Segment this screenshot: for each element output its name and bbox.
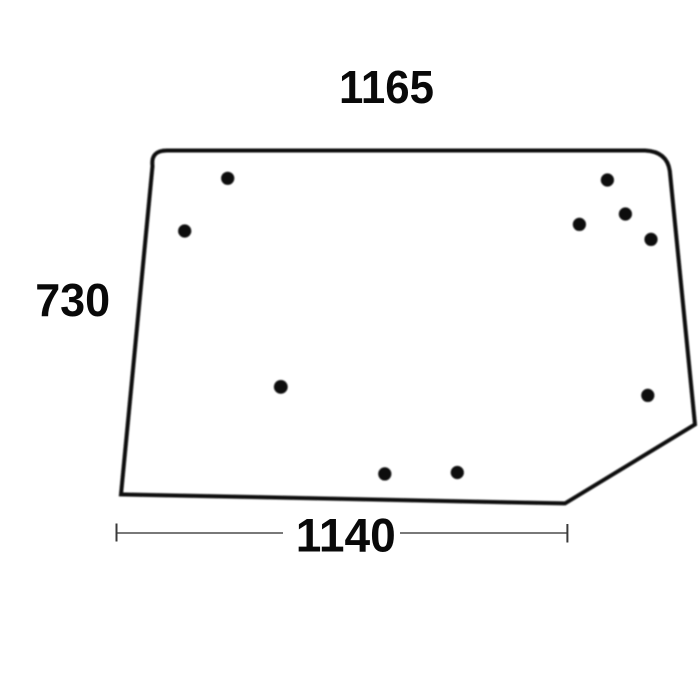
svg-text:730: 730 <box>35 274 110 326</box>
svg-text:1140: 1140 <box>296 509 396 562</box>
svg-text:1165: 1165 <box>339 61 434 113</box>
